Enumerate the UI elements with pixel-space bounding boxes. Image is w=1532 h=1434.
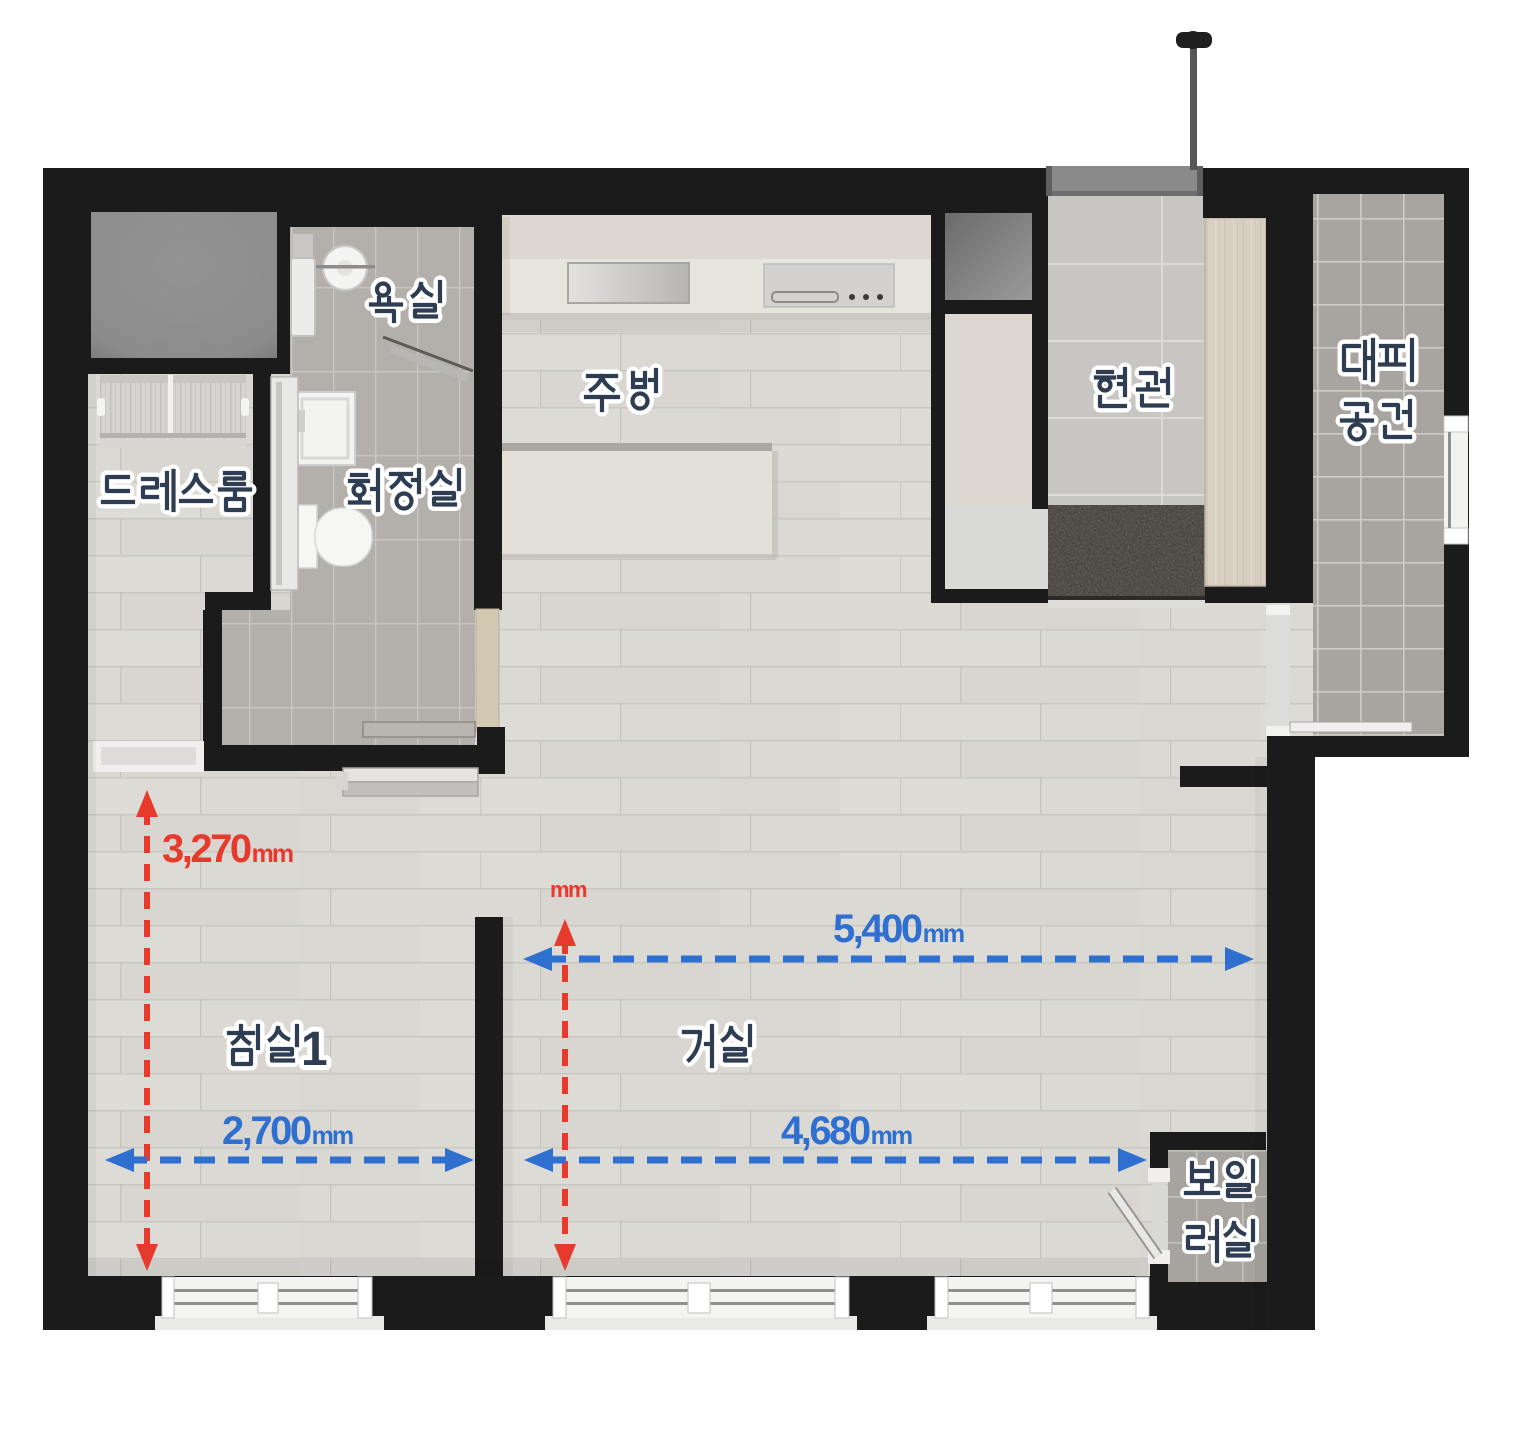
svg-text:1: 1 bbox=[301, 1023, 328, 1076]
svg-text:mm: mm bbox=[550, 877, 587, 902]
